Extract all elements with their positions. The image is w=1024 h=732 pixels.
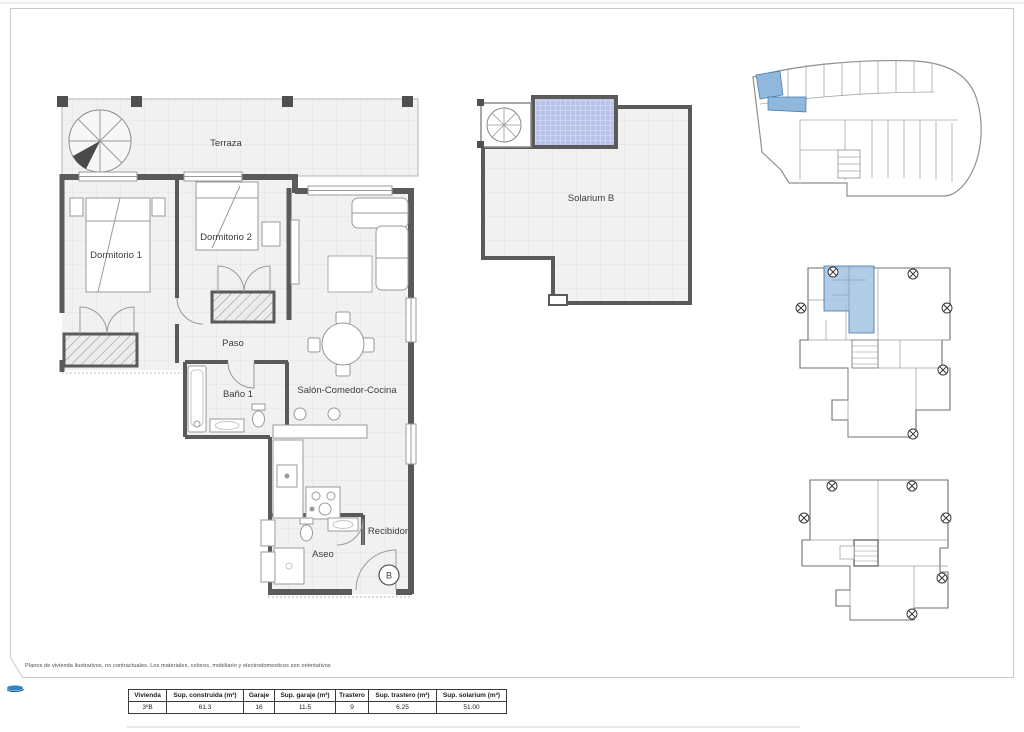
cell-vivienda: 3ºB (129, 702, 167, 714)
garage-stair-core (838, 150, 860, 178)
plan-sheet: B Terraza Dormitorio 1 Dormitorio 2 Paso… (0, 0, 1024, 732)
surface-table-data-row: 3ºB 61.3 16 11.5 9 6.25 51.00 (129, 702, 507, 714)
apartment-floor-plan: B Terraza Dormitorio 1 Dormitorio 2 Paso… (57, 96, 418, 597)
room-label-salon: Salón-Comedor-Cocina (297, 385, 397, 396)
col-header-garaje: Garaje (244, 690, 275, 702)
tv-unit (291, 220, 299, 284)
plan-drawing: B Terraza Dormitorio 1 Dormitorio 2 Paso… (0, 0, 1024, 732)
room-label-bano-1: Baño 1 (223, 389, 253, 400)
cell-garaje: 16 (244, 702, 275, 714)
solarium-pergola (533, 97, 616, 147)
garage-highlight-parking (756, 71, 783, 99)
coffee-table (328, 256, 372, 292)
col-header-sup-garaje: Sup. garaje (m²) (275, 690, 336, 702)
cell-sup-construida: 61.3 (167, 702, 244, 714)
cell-sup-solarium: 51.00 (437, 702, 507, 714)
surface-table-header-row: Vivienda Sup. construida (m²) Garaje Sup… (129, 690, 507, 702)
col-header-trastero: Trastero (336, 690, 369, 702)
cell-sup-trastero: 6.25 (369, 702, 437, 714)
floor-keyplan-stair-core (852, 340, 878, 368)
garage-highlight-storage (768, 97, 806, 112)
solarium-plan: Solarium B (477, 97, 690, 305)
logo-mark-icon (7, 685, 24, 691)
entrance-badge-label: B (386, 571, 392, 581)
room-label-dormitorio-2: Dormitorio 2 (200, 232, 252, 243)
spiral-stair-icon (69, 110, 131, 172)
col-header-sup-trastero: Sup. trastero (m²) (369, 690, 437, 702)
room-label-paso: Paso (222, 338, 244, 349)
floor-keyplan (796, 266, 952, 439)
roof-keyplan (799, 480, 951, 620)
disclaimer-text: Planos de vivienda ilustrativos, no cont… (25, 663, 331, 669)
garage-keyplan (753, 61, 981, 196)
room-label-aseo: Aseo (312, 549, 334, 560)
room-label-terraza: Terraza (210, 138, 242, 149)
room-label-recibidor: Recibidor (368, 526, 408, 537)
col-header-sup-solarium: Sup. solarium (m²) (437, 690, 507, 702)
solarium-step (549, 295, 567, 305)
surface-table: Vivienda Sup. construida (m²) Garaje Sup… (128, 689, 507, 714)
col-header-sup-construida: Sup. construida (m²) (167, 690, 244, 702)
cell-trastero: 9 (336, 702, 369, 714)
room-label-solarium: Solarium B (568, 193, 614, 204)
room-label-dormitorio-1: Dormitorio 1 (90, 250, 142, 261)
col-header-vivienda: Vivienda (129, 690, 167, 702)
cell-sup-garaje: 11.5 (275, 702, 336, 714)
solarium-stair-box (477, 99, 531, 148)
